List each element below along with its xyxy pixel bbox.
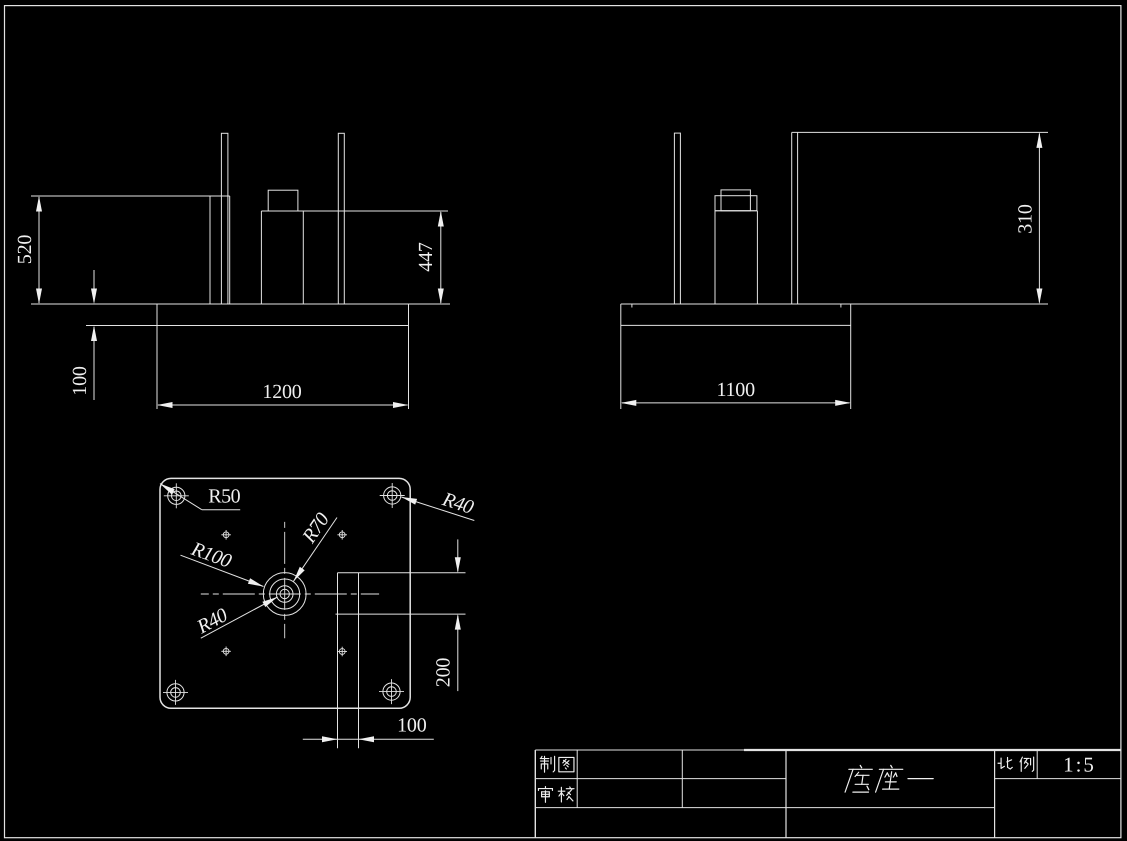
- svg-text:520: 520: [14, 235, 36, 265]
- svg-text:100: 100: [69, 366, 91, 396]
- svg-text:R50: R50: [208, 485, 240, 507]
- svg-text:1100: 1100: [716, 379, 755, 401]
- svg-text:310: 310: [1015, 204, 1037, 234]
- svg-text:447: 447: [415, 242, 437, 272]
- svg-text:100: 100: [397, 715, 427, 737]
- svg-text:1:5: 1:5: [1063, 753, 1096, 777]
- svg-text:1200: 1200: [262, 381, 301, 403]
- svg-text:200: 200: [432, 658, 454, 688]
